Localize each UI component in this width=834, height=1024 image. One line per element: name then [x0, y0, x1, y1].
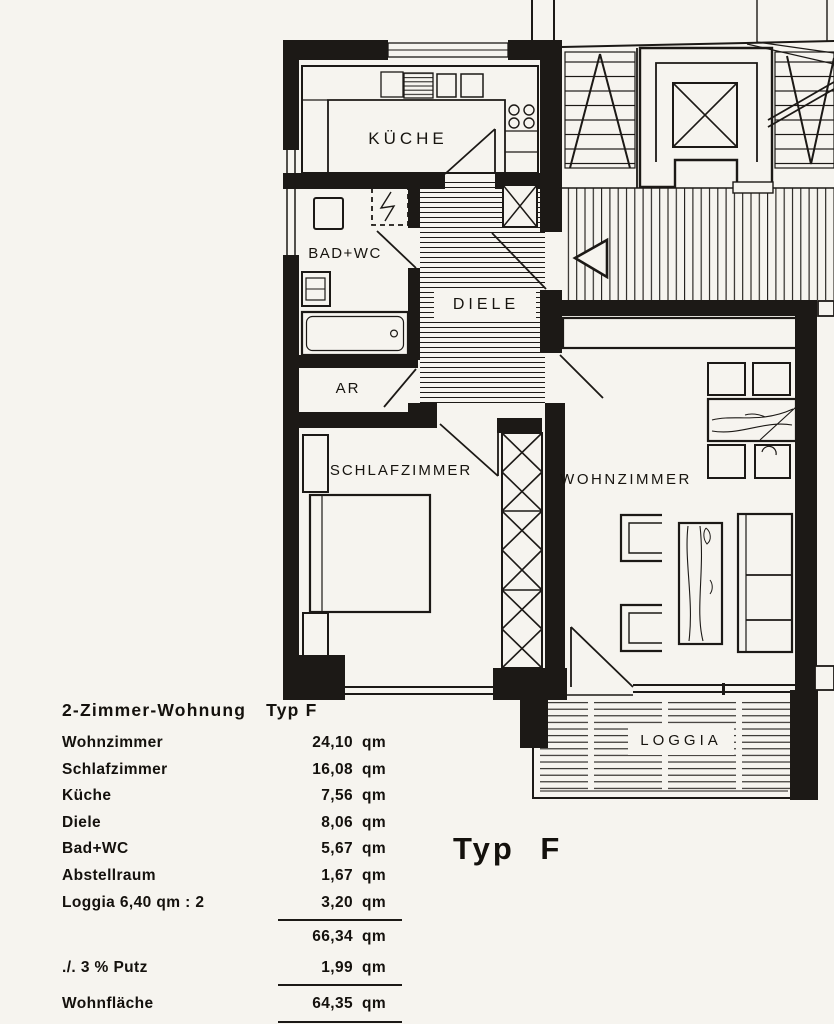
kueche-fixtures [302, 66, 538, 173]
table-row: Loggia 6,40 qm : 2 3,20 qm [62, 890, 402, 917]
table-row: Wohnzimmer 24,10 qm [62, 730, 402, 757]
room-label-kueche: KÜCHE [368, 129, 448, 149]
stair-flight-left [565, 52, 635, 168]
kitchen-door [445, 129, 495, 174]
elevator-shaft [640, 48, 772, 187]
wc [314, 198, 343, 229]
dining-chair [755, 445, 790, 478]
table-row: Küche 7,56 qm [62, 783, 402, 810]
dining-chair [708, 363, 745, 395]
armchair [621, 605, 662, 651]
sofa [738, 514, 792, 652]
room-label-loggia: LOGGIA [640, 732, 722, 749]
corridor-landing [562, 182, 834, 300]
bath-door [377, 231, 416, 268]
duct-shaft [503, 185, 537, 227]
washbasin [302, 272, 330, 306]
kitchen-window [388, 43, 508, 57]
bath-window [287, 150, 295, 255]
livingroom-door [560, 355, 603, 398]
subtotal-row: 66,34 qm [62, 924, 402, 951]
table-row: Abstellraum 1,67 qm [62, 863, 402, 890]
apartment-type-label: Typ F [453, 831, 562, 867]
room-label-diele: DIELE [453, 296, 519, 314]
sink [404, 73, 433, 98]
table-row: Schlafzimmer 16,08 qm [62, 757, 402, 784]
bedroom-window [345, 687, 493, 694]
counter-cell [381, 72, 403, 97]
armchair [621, 515, 662, 561]
exterior-stubs [815, 301, 834, 690]
storage-door [384, 369, 416, 407]
counter-cell [461, 74, 483, 97]
bedside-cabinet [303, 435, 328, 492]
shaft-zigzag [381, 192, 394, 221]
coffee-table [679, 523, 722, 644]
deduction-row: ./. 3 % Putz 1,99 qm [62, 955, 402, 982]
dining-chair [753, 363, 790, 395]
room-label-bad-wc: BAD+WC [308, 245, 382, 262]
dining-chair [708, 445, 745, 478]
bathtub [302, 312, 408, 355]
wardrobe [502, 433, 542, 668]
room-label-wohnzimmer: WOHNZIMMER [560, 471, 692, 488]
area-table-title-right: Typ F [266, 700, 317, 721]
total-rule [278, 984, 402, 986]
counter-cell [437, 74, 456, 97]
stove [505, 105, 538, 152]
table-row: Bad+WC 5,67 qm [62, 836, 402, 863]
room-label-schlafzimmer: SCHLAFZIMMER [330, 462, 472, 479]
bottom-rule [278, 1021, 402, 1023]
total-row: Wohnfläche 64,35 qm [62, 991, 402, 1018]
subtotal-rule [278, 919, 402, 921]
bed [310, 495, 430, 612]
area-table-title-left: 2-Zimmer-Wohnung [62, 700, 246, 721]
room-label-abstellraum: AR [336, 380, 361, 397]
floorplan-scan-page: KÜCHE BAD+WC DIELE AR SCHLAFZIMMER WOHNZ… [0, 0, 834, 1024]
section-tick-lines [532, 0, 827, 42]
dining-table [708, 399, 796, 441]
stairwell [532, 0, 834, 300]
balcony-door [571, 627, 633, 687]
livingroom-window [567, 683, 795, 695]
area-table: 2-Zimmer-Wohnung Typ F Wohnzimmer 24,10 … [62, 700, 402, 1024]
bad-fixtures [302, 185, 408, 355]
shaft-dashed [372, 185, 408, 225]
table-row: Diele 8,06 qm [62, 810, 402, 837]
sideboard [563, 318, 797, 348]
area-table-title: 2-Zimmer-Wohnung Typ F [62, 700, 402, 721]
loggia-floor-hatch [533, 700, 792, 798]
